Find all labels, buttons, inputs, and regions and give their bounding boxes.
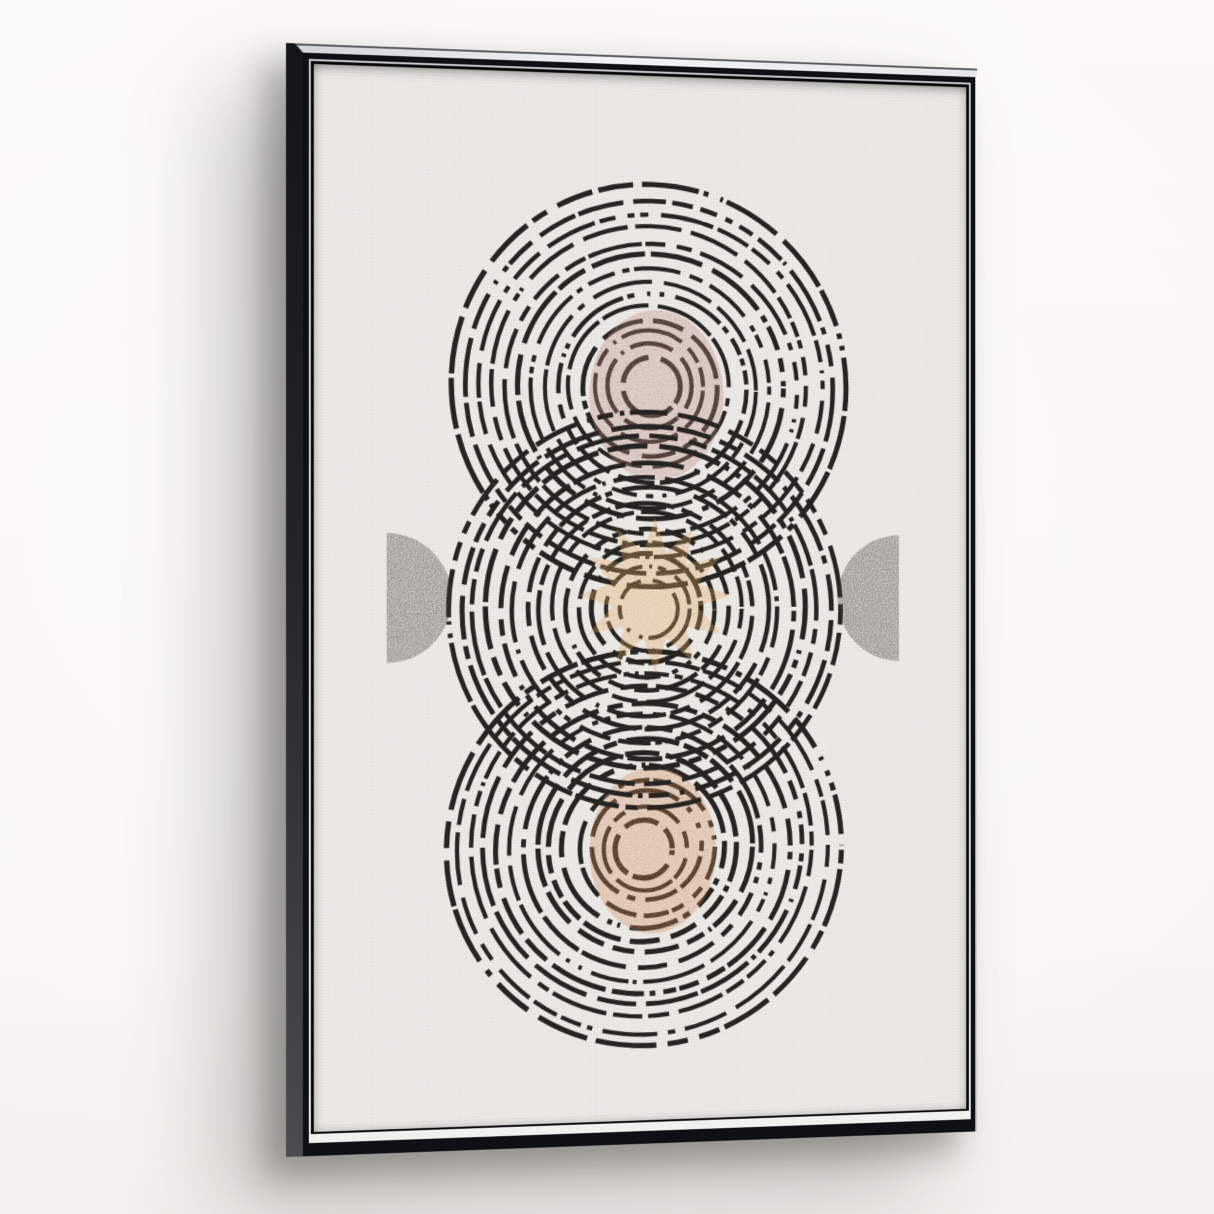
frame-shadow-gap — [311, 61, 969, 1134]
art-canvas — [314, 64, 966, 1132]
artwork — [314, 64, 966, 1132]
frame-front — [303, 53, 977, 1157]
product-photo — [0, 0, 1214, 1214]
frame-left-side-face — [286, 43, 303, 1157]
half-moon-right — [838, 535, 899, 661]
frame-inner-lip — [309, 59, 971, 1143]
picture-frame — [286, 43, 977, 1157]
half-moon-left — [387, 533, 452, 663]
